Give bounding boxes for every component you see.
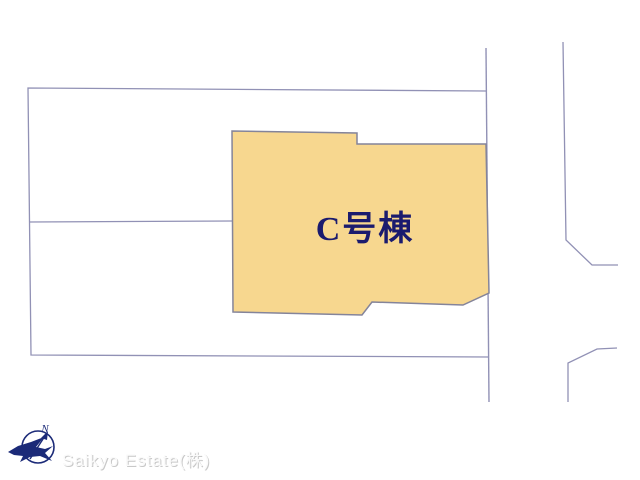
road-edge-lower-right	[568, 348, 617, 402]
parcel-divider-line	[29, 221, 232, 222]
road-edge-upper-right	[563, 42, 618, 265]
site-plan-drawing: C号棟 N Saikyo Estate(株) Saikyo Estate(株)	[0, 0, 640, 480]
site-plan: C号棟 N Saikyo Estate(株) Saikyo Estate(株)	[0, 0, 640, 480]
company-watermark: Saikyo Estate(株)	[62, 451, 210, 470]
building-c-label: C号棟	[316, 210, 415, 248]
compass: N	[8, 423, 54, 463]
compass-north-label: N	[40, 423, 49, 435]
